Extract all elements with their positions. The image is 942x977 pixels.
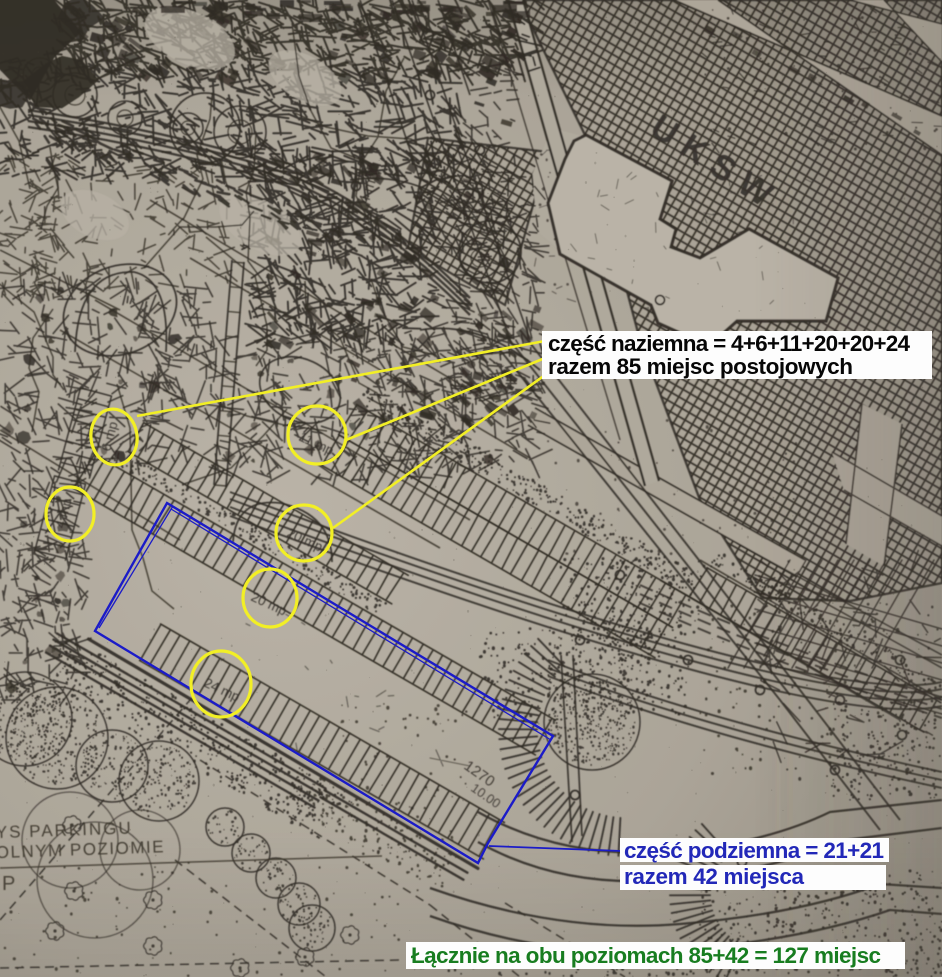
svg-text:część naziemna = 4+6+11+20+20+: część naziemna = 4+6+11+20+20+24 <box>548 331 910 356</box>
svg-text:razem 42 miejsca: razem 42 miejsca <box>624 864 804 889</box>
svg-text:Łącznie na obu poziomach 85+42: Łącznie na obu poziomach 85+42 = 127 mie… <box>411 943 881 968</box>
svg-text:razem 85 miejsc postojowych: razem 85 miejsc postojowych <box>548 354 853 379</box>
svg-text:część podziemna = 21+21: część podziemna = 21+21 <box>624 838 884 863</box>
